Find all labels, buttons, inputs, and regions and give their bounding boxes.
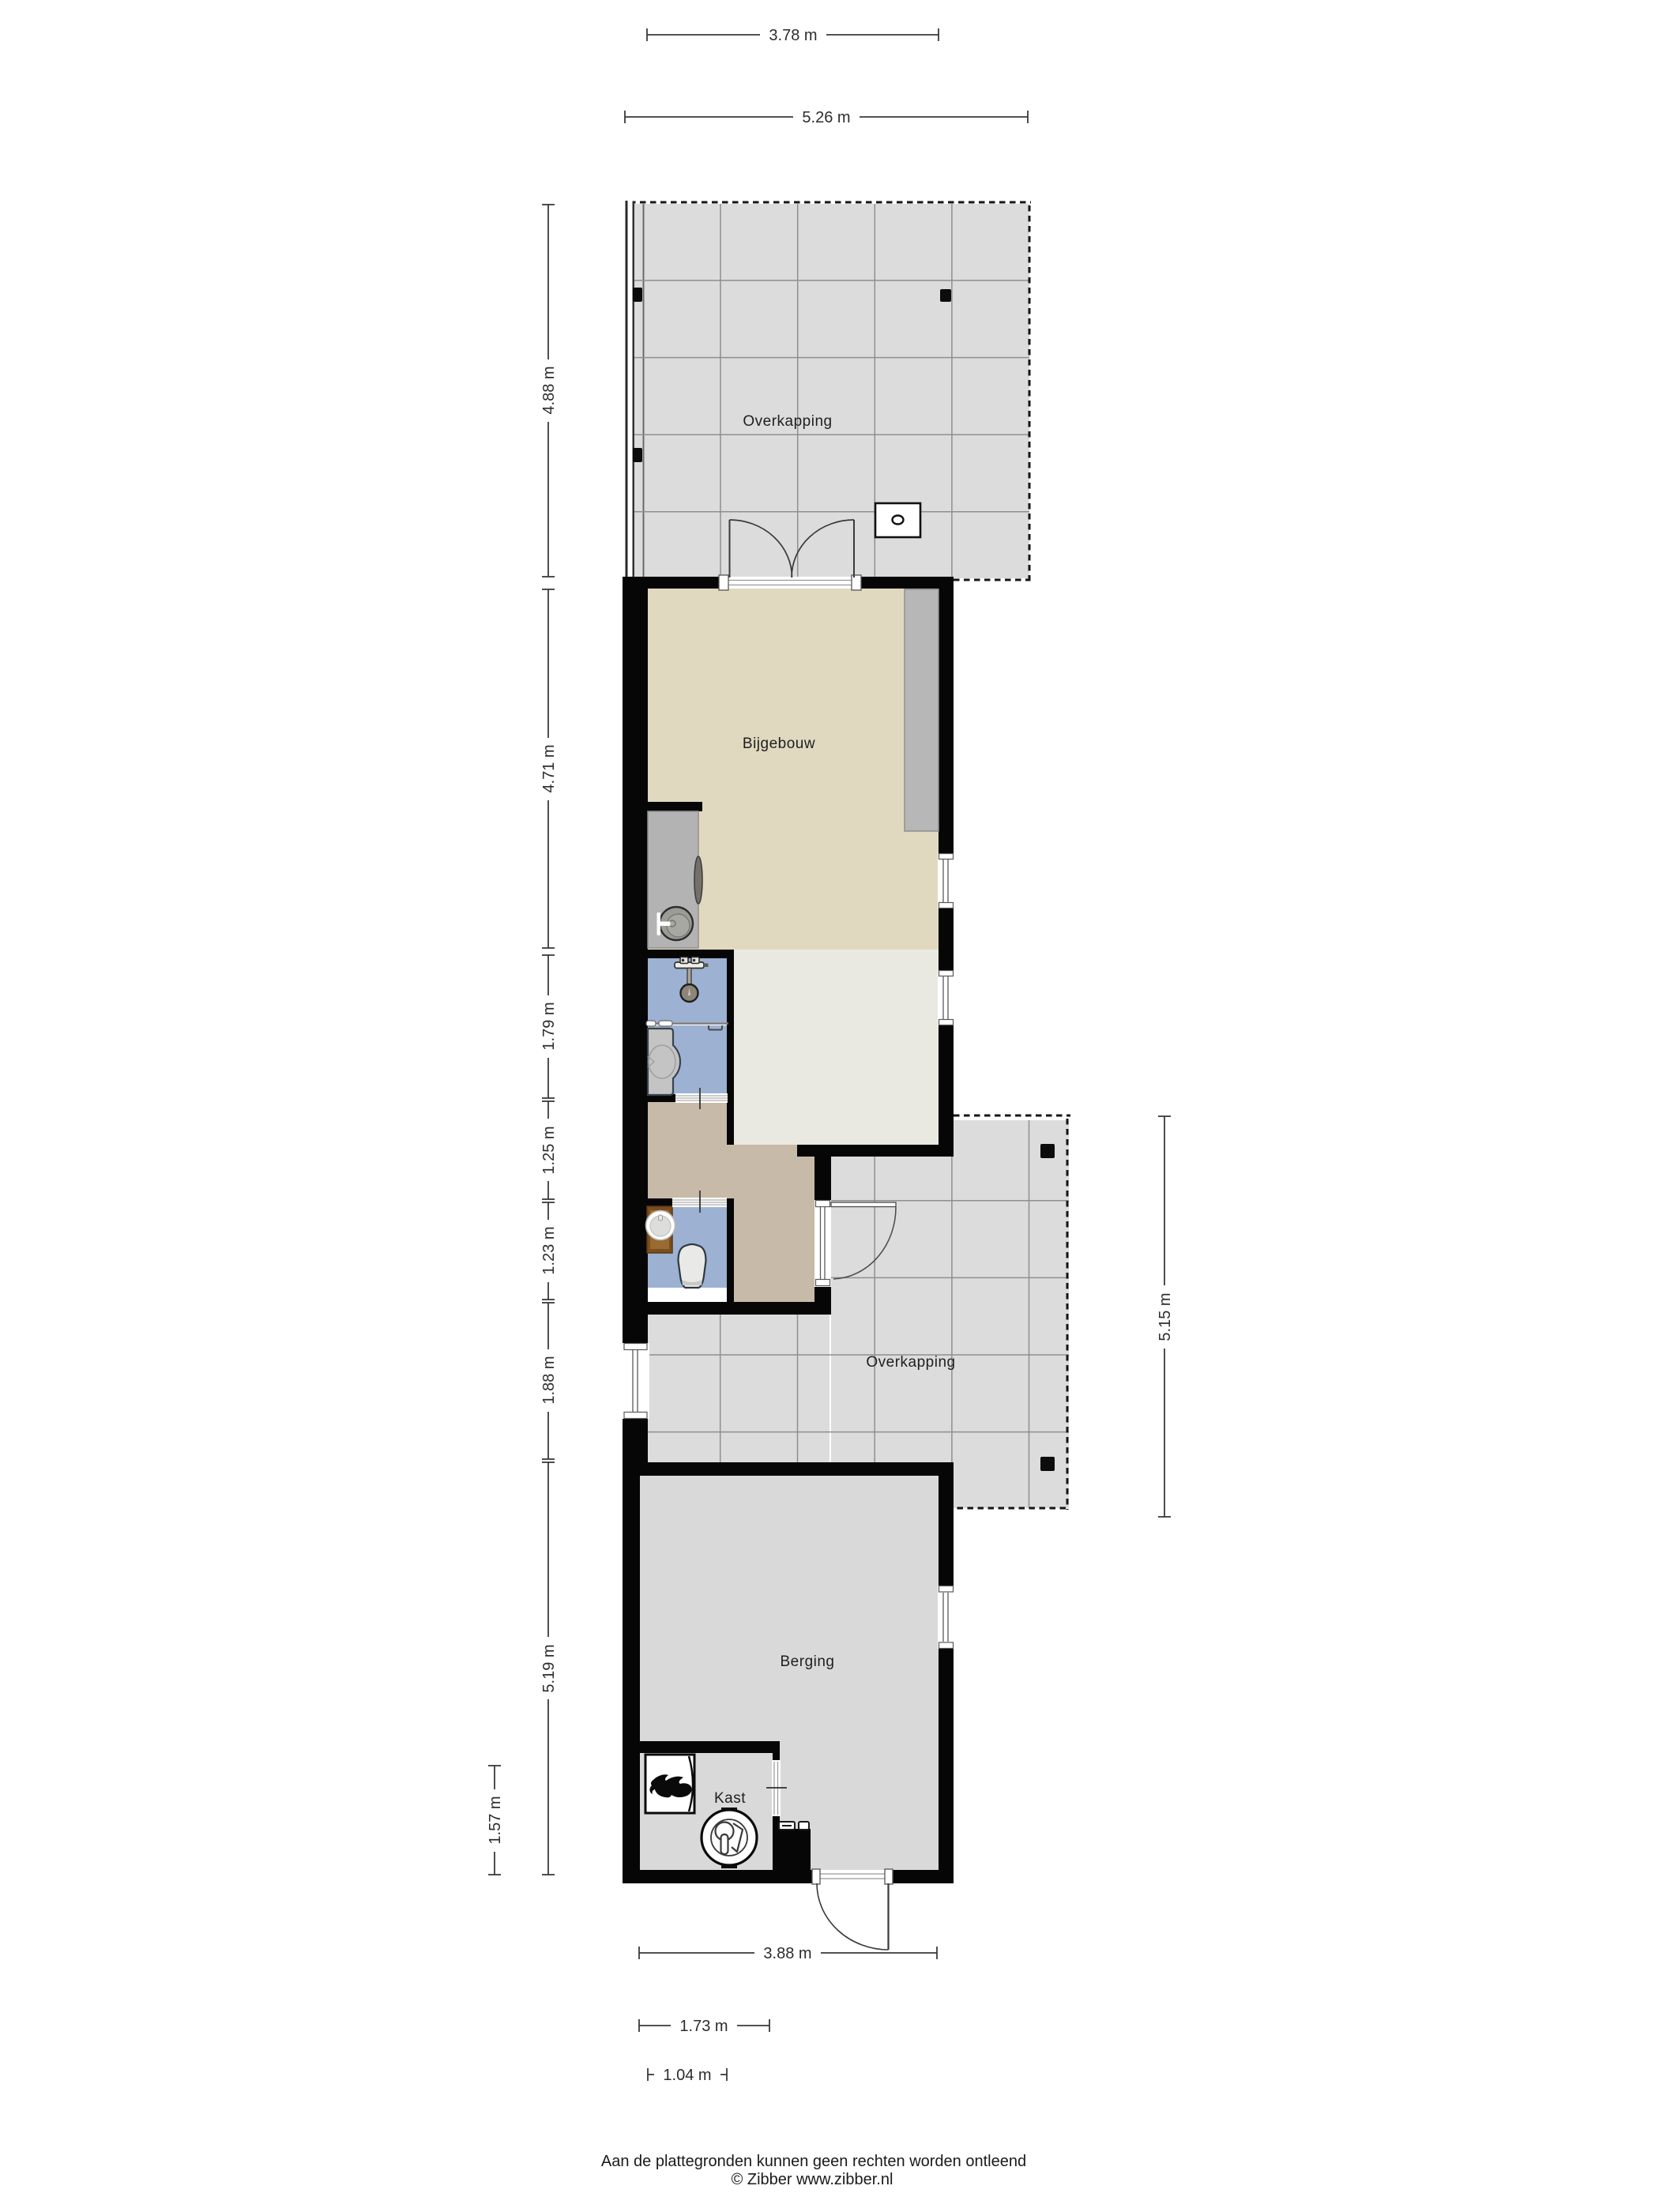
svg-text:4.88 m: 4.88 m bbox=[540, 366, 558, 414]
svg-text:5.15 m: 5.15 m bbox=[1157, 1292, 1174, 1341]
svg-text:Aan de plattegronden kunnen ge: Aan de plattegronden kunnen geen rechten… bbox=[601, 2153, 1026, 2170]
svg-text:5.26 m: 5.26 m bbox=[802, 109, 850, 126]
svg-text:1.79 m: 1.79 m bbox=[540, 1002, 558, 1050]
svg-text:3.78 m: 3.78 m bbox=[769, 27, 817, 44]
svg-text:1.57 m: 1.57 m bbox=[487, 1796, 504, 1844]
svg-text:Kast: Kast bbox=[714, 1790, 746, 1807]
svg-text:1.04 m: 1.04 m bbox=[663, 2067, 711, 2084]
svg-text:5.19 m: 5.19 m bbox=[540, 1644, 558, 1692]
svg-text:3.88 m: 3.88 m bbox=[763, 1945, 811, 1962]
svg-text:1.23 m: 1.23 m bbox=[540, 1226, 558, 1274]
svg-text:Bijgebouw: Bijgebouw bbox=[743, 735, 815, 752]
svg-text:1.88 m: 1.88 m bbox=[540, 1356, 558, 1404]
svg-text:Overkapping: Overkapping bbox=[743, 413, 832, 430]
svg-text:Overkapping: Overkapping bbox=[866, 1354, 955, 1371]
svg-text:Berging: Berging bbox=[781, 1653, 835, 1670]
svg-text:1.25 m: 1.25 m bbox=[540, 1126, 558, 1174]
svg-text:1.73 m: 1.73 m bbox=[679, 2018, 728, 2035]
svg-text:© Zibber www.zibber.nl: © Zibber www.zibber.nl bbox=[732, 2171, 893, 2188]
svg-text:4.71 m: 4.71 m bbox=[540, 744, 558, 792]
